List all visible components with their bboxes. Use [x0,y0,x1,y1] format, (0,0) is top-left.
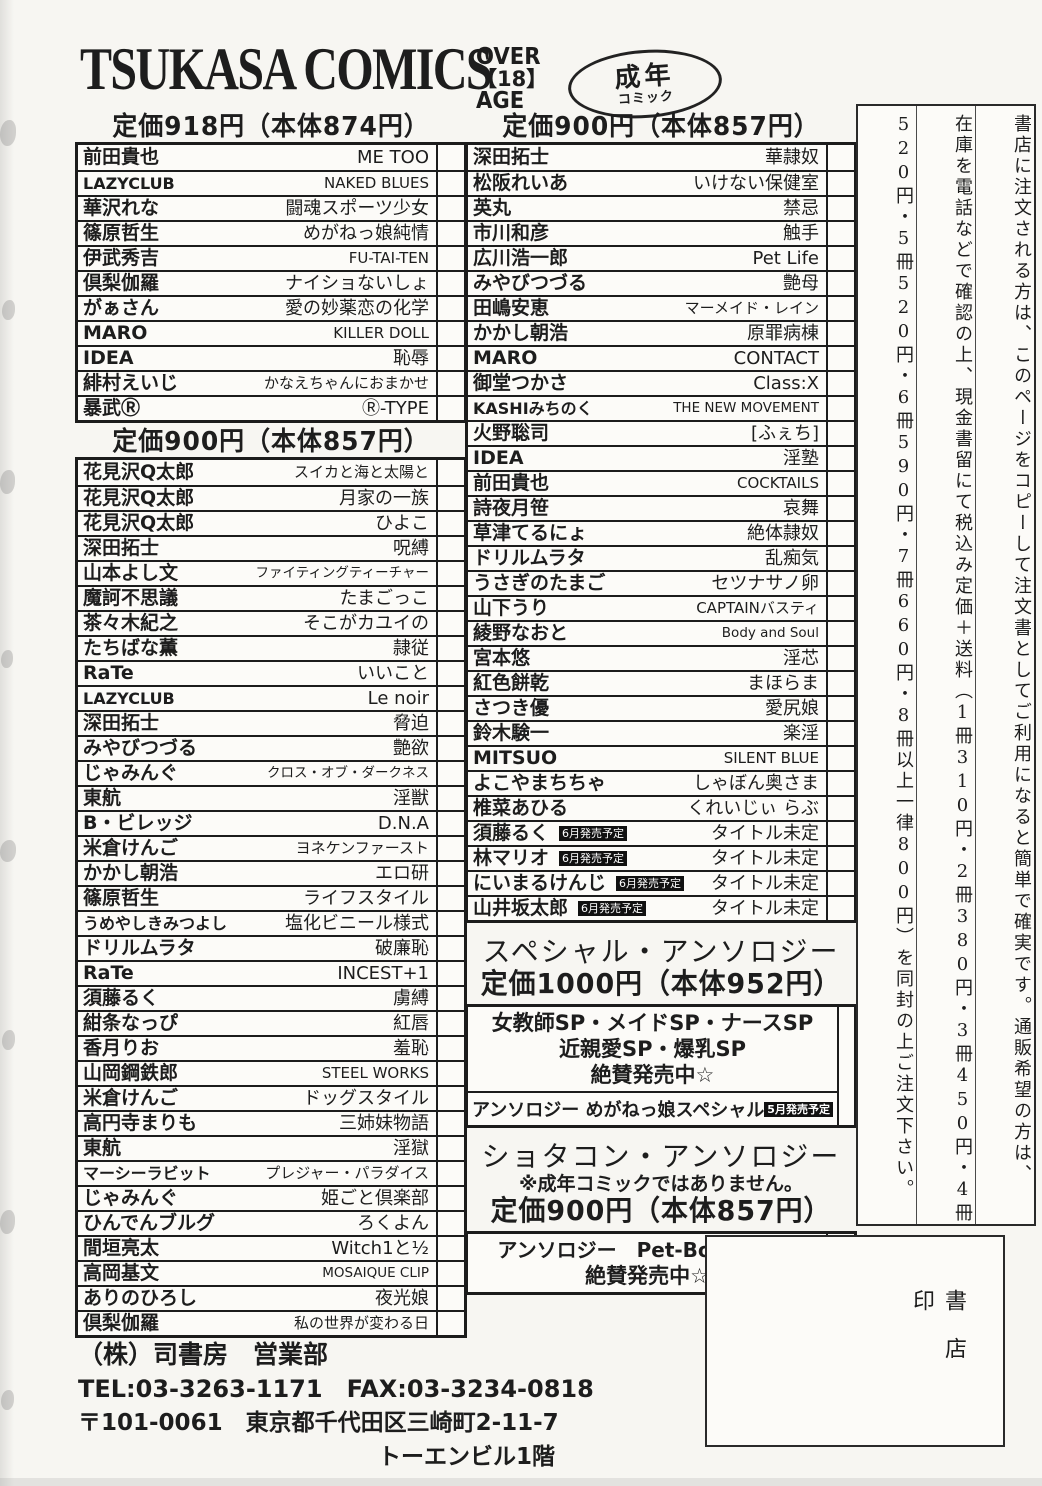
author-name: 高岡基文 [78,1264,159,1283]
table-row: ドリルムラタ乱痴気 [468,545,854,570]
book-title: NAKED BLUES [324,176,434,191]
table-row: じゃみんぐ姫ごと倶楽部 [78,1185,464,1210]
author-name: 東航 [78,1139,121,1158]
adult-comic-oval-line1: 成年 [614,61,676,91]
order-checkbox-cell [436,737,464,760]
book-title: ヨネケンファースト [296,841,434,856]
author-name: 詩夜月笹 [468,499,549,518]
table-row: かかし朝浩エロ研 [78,860,464,885]
table-row: 花見沢Q太郎スイカと海と太陽と [78,460,464,485]
author-name: ドリルムラタ [78,939,196,958]
author-name: 倶梨伽羅 [78,274,159,293]
table-row: 前田貴也ME TOO [78,145,464,170]
table-row: MAROKILLER DOLL [78,320,464,345]
table-row: LAZYCLUBLe noir [78,685,464,710]
special-anthology-lines: 女教師SP・メイドSP・ナースSP 近親愛SP・爆乳SP 絶賛発売中☆ アンソロ… [468,1007,837,1125]
publisher-info: （株）司書房 営業部 TEL:03-3263-1171 FAX:03-3234-… [78,1338,594,1474]
order-checkbox-cell [826,297,854,320]
table-row: MAROCONTACT [468,345,854,370]
order-checkbox-cell [436,962,464,985]
release-badge: 5月発売予定 [764,1102,833,1117]
author-name: 高円寺まりも [78,1114,197,1133]
table-row: IDEA淫塾 [468,445,854,470]
book-title: 楽淫 [783,725,824,743]
special-anthology-line: 近親愛SP・爆乳SP [470,1036,835,1062]
table-row: 高岡基文MOSAIQUE CLIP [78,1260,464,1285]
author-name: 篠原哲生 [78,889,159,908]
table-row: 緋村えいじかなえちゃんにおまかせ [78,370,464,395]
table-row: たちばな薫隷従 [78,635,464,660]
author-name: ドリルムラタ [468,549,586,568]
book-title: 淫芯 [783,650,824,668]
table-row: 篠原哲生めがねっ娘純情 [78,220,464,245]
author-name: 花見沢Q太郎 [78,514,194,533]
author-name: 林マリオ [468,849,549,868]
author-name: ひんでんブルグ [78,1214,215,1233]
book-title: 艶母 [783,275,824,293]
book-title: 淫塾 [783,450,824,468]
author-name: 香月りお [78,1039,159,1058]
book-title: 私の世界が変わる日 [294,1316,434,1331]
table-row: 林マリオ6月発売予定タイトル未定 [468,845,854,870]
book-title: KILLER DOLL [333,326,434,341]
order-checkbox-cell [826,897,854,920]
title-table: 深田拓士華隷奴松阪れいあいけない保健室英丸禁忌市川和彦触手広川浩一郎Pet Li… [465,142,857,923]
table-row: うさぎのたまごセツナサノ卵 [468,570,854,595]
order-checkbox-cell [826,422,854,445]
book-title: [ふぇち] [751,425,824,443]
order-checkbox-cell [826,145,854,170]
author-name: LAZYCLUB [78,176,175,192]
book-title: 淫獣 [393,790,434,808]
order-checkbox-cell [436,512,464,535]
book-title: 呪縛 [393,540,434,558]
order-checkbox-cell [436,172,464,195]
order-instructions-column-3: 520円・5冊520円・6冊590円・7冊660円・8冊以上一律800円）を同封… [858,106,917,1224]
table-row: KASHIみちのくTHE NEW MOVEMENT [468,395,854,420]
author-name: 山井坂太郎 [468,899,568,918]
order-checkbox-cell [436,347,464,370]
author-name: 花見沢Q太郎 [78,463,194,482]
book-title: MOSAIQUE CLIP [322,1267,434,1281]
table-row: 華沢れな闘魂スポーツ少女 [78,195,464,220]
order-checkbox-cell [826,497,854,520]
author-name: 米倉けんご [78,839,178,858]
book-title: そこがカユイの [303,615,434,633]
over18-badge-line3: AGE [476,90,542,112]
book-title: INCEST+1 [337,965,434,983]
order-checkbox-cell [436,937,464,960]
author-name: MARO [78,324,147,343]
release-badge: 6月発売予定 [559,826,627,841]
author-name: 松阪れいあ [468,174,568,193]
table-row: にいまるけんじ6月発売予定タイトル未定 [468,870,854,895]
order-checkbox-cell [436,1212,464,1235]
author-name: 宮本悠 [468,649,530,668]
price-section-header: 定価900円（本体857円） [473,112,849,142]
order-checkbox-cell [436,1037,464,1060]
author-name: うさぎのたまご [468,574,605,593]
author-name: RaTe [78,664,134,683]
book-title: くれいじぃ らぶ [687,800,824,818]
order-checkbox-cell [436,1012,464,1035]
special-anthology-line: 絶賛発売中☆ [470,1062,835,1088]
table-row: じゃみんぐクロス・オブ・ダークネス [78,760,464,785]
price-section-918: 定価918円（本体874円）前田貴也ME TOOLAZYCLUBNAKED BL… [75,112,467,423]
table-row: 東航淫獣 [78,785,464,810]
order-checkbox-cell [826,547,854,570]
title-table: 前田貴也ME TOOLAZYCLUBNAKED BLUES華沢れな闘魂スポーツ少… [75,142,467,423]
author-name: 倶梨伽羅 [78,1314,159,1333]
order-checkbox-cell [436,322,464,345]
author-name: 深田拓士 [468,148,549,167]
order-checkbox-cell [826,747,854,770]
over18-badge-line1: OVER [476,46,542,68]
table-row: 篠原哲生ライフスタイル [78,885,464,910]
book-title: Le noir [368,690,434,708]
order-instructions-column-1: 書店に注文される方は、このページをコピーして注文書としてご利用になると簡単で確実… [976,106,1034,1224]
author-name: 鈴木験一 [468,724,549,743]
book-title: ライフスタイル [303,890,434,908]
shotacon-anthology-title: ショタコン・アンソロジー [465,1141,857,1173]
adult-comic-oval-line2: コミック [618,90,675,107]
book-title: CONTACT [734,350,824,368]
book-title: 禁忌 [783,200,824,218]
author-name: MARO [468,349,537,368]
order-checkbox-cell [826,797,854,820]
order-checkbox-cell [826,697,854,720]
book-title: プレジャー・パラダイス [265,1166,434,1181]
order-checkbox-cell [436,787,464,810]
book-title: 乱痴気 [765,550,824,568]
order-checkbox-cell [826,197,854,220]
order-checkbox-cell [436,460,464,485]
book-title: Ⓡ-TYPE [362,400,434,418]
author-name: 山本よし文 [78,564,178,583]
order-checkbox-cell [436,687,464,710]
scan-edge-strip [0,0,14,1486]
book-title: 愛の妙薬恋の化学 [285,300,434,318]
author-name: 花見沢Q太郎 [78,489,194,508]
table-row: 綾野なおとBody and Soul [468,620,854,645]
bookstore-stamp-label: 書店印 [905,1289,969,1393]
table-row: 草津てるにょ絶体隷奴 [468,520,854,545]
book-title: 隷従 [393,640,434,658]
order-checkbox-cell [436,372,464,395]
book-title: 月家の一族 [339,490,434,508]
book-title: 艶欲 [393,740,434,758]
table-row: 松阪れいあいけない保健室 [468,170,854,195]
table-row: RaTeINCEST+1 [78,960,464,985]
table-row: 伊武秀吉FU-TAI-TEN [78,245,464,270]
order-checkbox-cell [436,837,464,860]
author-name: みやびつづる [78,739,197,758]
book-title: 触手 [783,225,824,243]
table-row: 山岡鋼鉄郎STEEL WORKS [78,1060,464,1085]
author-name: 綾野なおと [468,624,568,643]
book-title: しゃぼん奥さま [693,775,824,793]
order-checkbox-cell [436,612,464,635]
author-name: 暴武Ⓡ [78,399,140,418]
order-checkbox-cell [436,1137,464,1160]
order-checkbox-cell [826,222,854,245]
table-row: B・ビレッジD.N.A [78,810,464,835]
table-row: ありのひろし夜光娘 [78,1285,464,1310]
table-row: 鈴木験一楽淫 [468,720,854,745]
table-row: 山下うりCAPTAINバスティ [468,595,854,620]
order-checkbox-cell [436,637,464,660]
publisher-tel-fax: TEL:03-3263-1171 FAX:03-3234-0818 [78,1372,594,1406]
order-checkbox-cell [826,822,854,845]
order-checkbox-cell [436,1287,464,1310]
book-title: ME TOO [357,149,434,167]
order-checkbox-cell [436,197,464,220]
author-name: 伊武秀吉 [78,249,159,268]
book-title: 恥辱 [393,350,434,368]
book-title: Body and Soul [722,627,824,641]
author-name: みやびつづる [468,274,587,293]
book-title: Class:X [753,375,824,393]
order-checkbox-cell [826,522,854,545]
author-name: じゃみんぐ [78,764,178,783]
table-row: 倶梨伽羅私の世界が変わる日 [78,1310,464,1335]
author-name: 緋村えいじ [78,374,178,393]
book-title: かなえちゃんにおまかせ [264,376,434,391]
author-name: 紅色餅乾 [468,674,549,693]
special-anthology-title: スペシャル・アンソロジー [465,936,857,968]
book-title: 夜光娘 [375,1290,434,1308]
author-name: ありのひろし [78,1289,197,1308]
order-checkbox-cell [436,762,464,785]
author-name: 市川和彦 [468,224,549,243]
book-title: 闘魂スポーツ少女 [285,200,434,218]
book-title: COCKTAILS [737,476,824,491]
book-title: タイトル未定 [711,850,824,868]
table-row: 御堂つかさClass:X [468,370,854,395]
order-checkbox-cell [826,772,854,795]
author-name: 前田貴也 [78,148,159,167]
book-title: Pet Life [752,250,824,268]
publisher-company: （株）司書房 営業部 [78,1338,594,1372]
special-anthology-box: 女教師SP・メイドSP・ナースSP 近親愛SP・爆乳SP 絶賛発売中☆ アンソロ… [465,1004,857,1128]
order-checkbox-cell [826,247,854,270]
order-checkbox-cell [436,862,464,885]
table-row: 田嶋安恵マーメイド・レイン [468,295,854,320]
author-name: 御堂つかさ [468,374,568,393]
author-name: 草津てるにょ [468,524,587,543]
order-checkbox-cell [436,537,464,560]
author-name: 火野聡司 [468,424,549,443]
table-row: 英丸禁忌 [468,195,854,220]
book-title: 破廉恥 [375,940,434,958]
table-row: 東航淫獄 [78,1135,464,1160]
author-name: 田嶋安恵 [468,299,549,318]
order-instructions-box: 書店に注文される方は、このページをコピーして注文書としてご利用になると簡単で確実… [856,104,1036,1226]
author-name: 華沢れな [78,199,159,218]
order-checkbox-cell [826,472,854,495]
author-name: 魔訶不思議 [78,589,178,608]
table-row: 深田拓士呪縛 [78,535,464,560]
table-row: 深田拓士華隷奴 [468,145,854,170]
book-title: FU-TAI-TEN [349,251,434,266]
table-row: 椎菜あひるくれいじぃ らぶ [468,795,854,820]
bookstore-stamp-box: 書店印 [705,1235,1005,1447]
table-row: 米倉けんごドッグスタイル [78,1085,464,1110]
book-title: たまごっこ [340,590,434,608]
author-name: RaTe [78,964,134,983]
author-name: マーシーラビット [78,1166,211,1182]
table-row: 茶々木紀之そこがカユイの [78,610,464,635]
order-checkbox-cell [436,1187,464,1210]
book-title: 虜縛 [393,990,434,1008]
order-checkbox-cell [826,347,854,370]
author-name: よこやまちちゃ [468,774,606,793]
order-checkbox-cell [436,662,464,685]
author-name: 須藤るく [468,824,549,843]
table-row: 市川和彦触手 [468,220,854,245]
table-row: 香月りお羞恥 [78,1035,464,1060]
author-name: がぁさん [78,299,159,318]
publisher-logo: TSUKASA COMICS [80,38,491,100]
special-anthology-line: 女教師SP・メイドSP・ナースSP [470,1010,835,1036]
release-badge: 6月発売予定 [578,901,646,916]
book-title: 羞恥 [393,1040,434,1058]
order-checkbox-cell [436,1237,464,1260]
book-title: タイトル未定 [711,875,824,893]
order-checkbox-cell [436,397,464,420]
author-name: LAZYCLUB [78,691,175,707]
book-title: エロ研 [375,865,434,883]
author-name: 広川浩一郎 [468,249,568,268]
over18-badge-line2: 【18】 [476,68,547,90]
order-checkbox-cell [436,1312,464,1335]
author-name: さつき優 [468,699,549,718]
author-name: IDEA [78,349,134,368]
price-section-header: 定価918円（本体874円） [83,112,459,142]
table-row: さつき優愛尻娘 [468,695,854,720]
table-row: がぁさん愛の妙薬恋の化学 [78,295,464,320]
author-name: 篠原哲生 [78,224,159,243]
book-title: 紅唇 [393,1015,434,1033]
order-checkbox-cell [436,297,464,320]
order-checkbox-cell [436,712,464,735]
table-row: 花見沢Q太郎月家の一族 [78,485,464,510]
author-name: 前田貴也 [468,474,549,493]
over18-badge: OVER 【18】 AGE [476,46,547,112]
order-checkbox-cell [826,622,854,645]
order-checkbox-cell [436,812,464,835]
book-title: ひよこ [375,515,434,533]
table-row: 須藤るく虜縛 [78,985,464,1010]
table-row: よこやまちちゃしゃぼん奥さま [468,770,854,795]
author-name: 椎菜あひる [468,799,568,818]
table-row: 広川浩一郎Pet Life [468,245,854,270]
order-checkbox-cell [826,172,854,195]
order-instructions-column-2: 在庫を電話などで確認の上、現金書留にて税込み定価＋送料（1冊310円・2冊380… [917,106,976,1224]
shotacon-anthology-note: ※成年コミックではありません。 [465,1173,857,1195]
right-column: 定価900円（本体857円）深田拓士華隷奴松阪れいあいけない保健室英丸禁忌市川和… [465,112,857,1295]
table-row: 紺条なっぴ紅唇 [78,1010,464,1035]
table-row: IDEA恥辱 [78,345,464,370]
table-row: ドリルムラタ破廉恥 [78,935,464,960]
table-row: 花見沢Q太郎ひよこ [78,510,464,535]
order-checkbox-cell [826,572,854,595]
order-checkbox-cell [826,672,854,695]
table-row: うめやしきみつよし塩化ビニール様式 [78,910,464,935]
order-checkbox-cell [436,247,464,270]
table-row: みやびつづる艶欲 [78,735,464,760]
table-row: 米倉けんごヨネケンファースト [78,835,464,860]
table-row: ひんでんブルグろくよん [78,1210,464,1235]
table-row: かかし朝浩原罪病棟 [468,320,854,345]
author-name: 紺条なっぴ [78,1014,178,1033]
author-name: 英丸 [468,199,511,218]
order-checkbox-cell [436,562,464,585]
order-checkbox-cell [826,872,854,895]
special-anthology-row-label: アンソロジー めがねっ娘スペシャル [472,1096,764,1122]
order-checkbox-cell [436,912,464,935]
book-title: ファイティングティーチャー [256,567,434,581]
order-checkbox-cell [826,597,854,620]
table-row: 詩夜月笹哀舞 [468,495,854,520]
release-badge: 6月発売予定 [616,876,684,891]
order-checkbox-cell [826,322,854,345]
book-title: CAPTAINバスティ [696,601,824,616]
order-checkbox-cell [826,397,854,420]
table-row: 深田拓士脅迫 [78,710,464,735]
order-checkbox-cell [436,487,464,510]
order-checkbox-cell [826,847,854,870]
author-name: 深田拓士 [78,539,159,558]
scan-bottom-strip [0,1478,1042,1486]
author-name: うめやしきみつよし [78,916,227,932]
table-row: 間垣亮太Witch1と½ [78,1235,464,1260]
order-checkbox-cell [436,272,464,295]
book-title: 原罪病棟 [747,325,824,343]
book-title: クロス・オブ・ダークネス [267,767,434,781]
author-name: にいまるけんじ [468,874,606,893]
author-name: IDEA [468,449,524,468]
special-anthology-row: アンソロジー めがねっ娘スペシャル 5月発売予定 [468,1091,837,1125]
author-name: MITSUO [468,749,557,768]
order-checkbox-cell [436,145,464,170]
order-checkbox-cell [826,272,854,295]
release-badge: 6月発売予定 [559,851,627,866]
book-title: SILENT BLUE [724,751,824,766]
book-title: THE NEW MOVEMENT [673,402,824,416]
author-name: KASHIみちのく [468,401,593,417]
author-name: 米倉けんご [78,1089,178,1108]
book-title: STEEL WORKS [322,1066,434,1081]
author-name: 東航 [78,789,121,808]
author-name: かかし朝浩 [468,324,568,343]
table-row: RaTeいいこと [78,660,464,685]
author-name: 須藤るく [78,989,159,1008]
order-checkbox-cell [436,1262,464,1285]
table-row: 火野聡司[ふぇち] [468,420,854,445]
author-name: 茶々木紀之 [78,614,178,633]
order-checkbox-cell [436,587,464,610]
book-title: マーメイド・レイン [685,301,824,316]
book-title: タイトル未定 [711,900,824,918]
left-column: 定価918円（本体874円）前田貴也ME TOOLAZYCLUBNAKED BL… [75,112,467,1338]
table-row: 山井坂太郎6月発売予定タイトル未定 [468,895,854,920]
book-title: めがねっ娘純情 [303,225,434,243]
price-section-900-left: 定価900円（本体857円）花見沢Q太郎スイカと海と太陽と花見沢Q太郎月家の一族… [75,427,467,1338]
table-row: 高円寺まりも三姉妹物語 [78,1110,464,1135]
book-title: Witch1と½ [331,1240,434,1258]
price-section-900-right: 定価900円（本体857円）深田拓士華隷奴松阪れいあいけない保健室英丸禁忌市川和… [465,112,857,923]
